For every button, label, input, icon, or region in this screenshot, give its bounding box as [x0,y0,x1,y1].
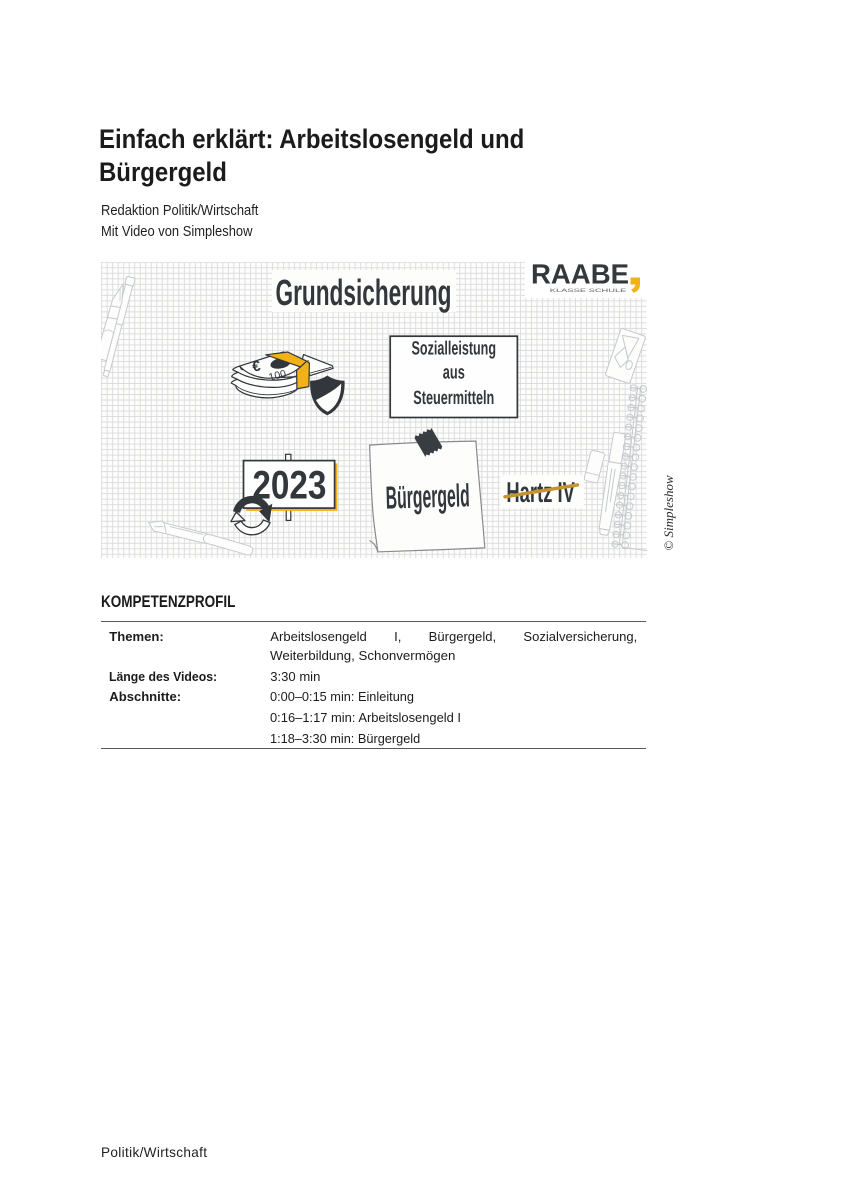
svg-text:Bürgergeld: Bürgergeld [385,477,470,515]
svg-text:Hartz IV: Hartz IV [506,477,575,509]
svg-text:Grundsicherung: Grundsicherung [275,272,451,313]
svg-text:KLASSE SCHULE: KLASSE SCHULE [549,288,627,294]
svg-text:Sozialleistung: Sozialleistung [411,339,496,360]
svg-text:Steuermitteln: Steuermitteln [413,388,494,409]
svg-text:RAABE: RAABE [531,262,629,290]
svg-text:aus: aus [442,363,464,384]
